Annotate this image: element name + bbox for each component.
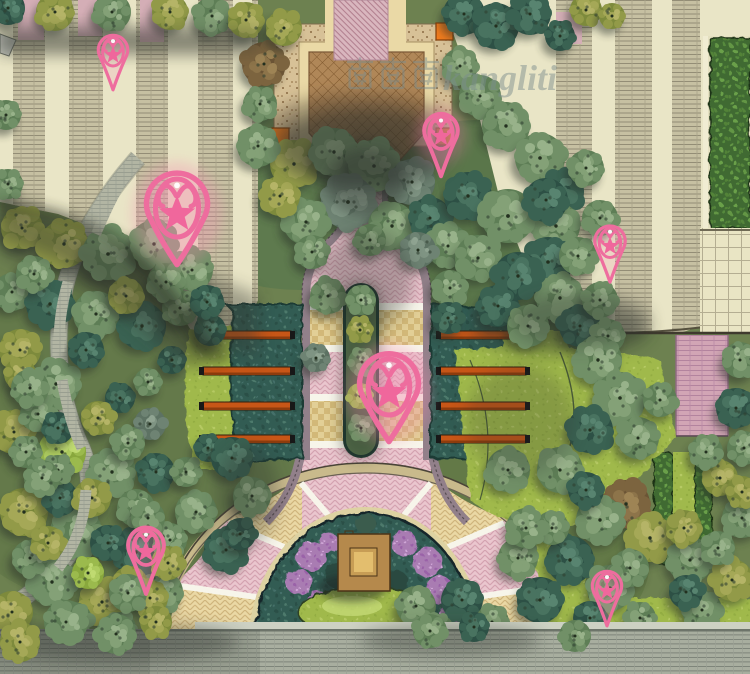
svg-text:kangliti: kangliti [443, 58, 557, 98]
